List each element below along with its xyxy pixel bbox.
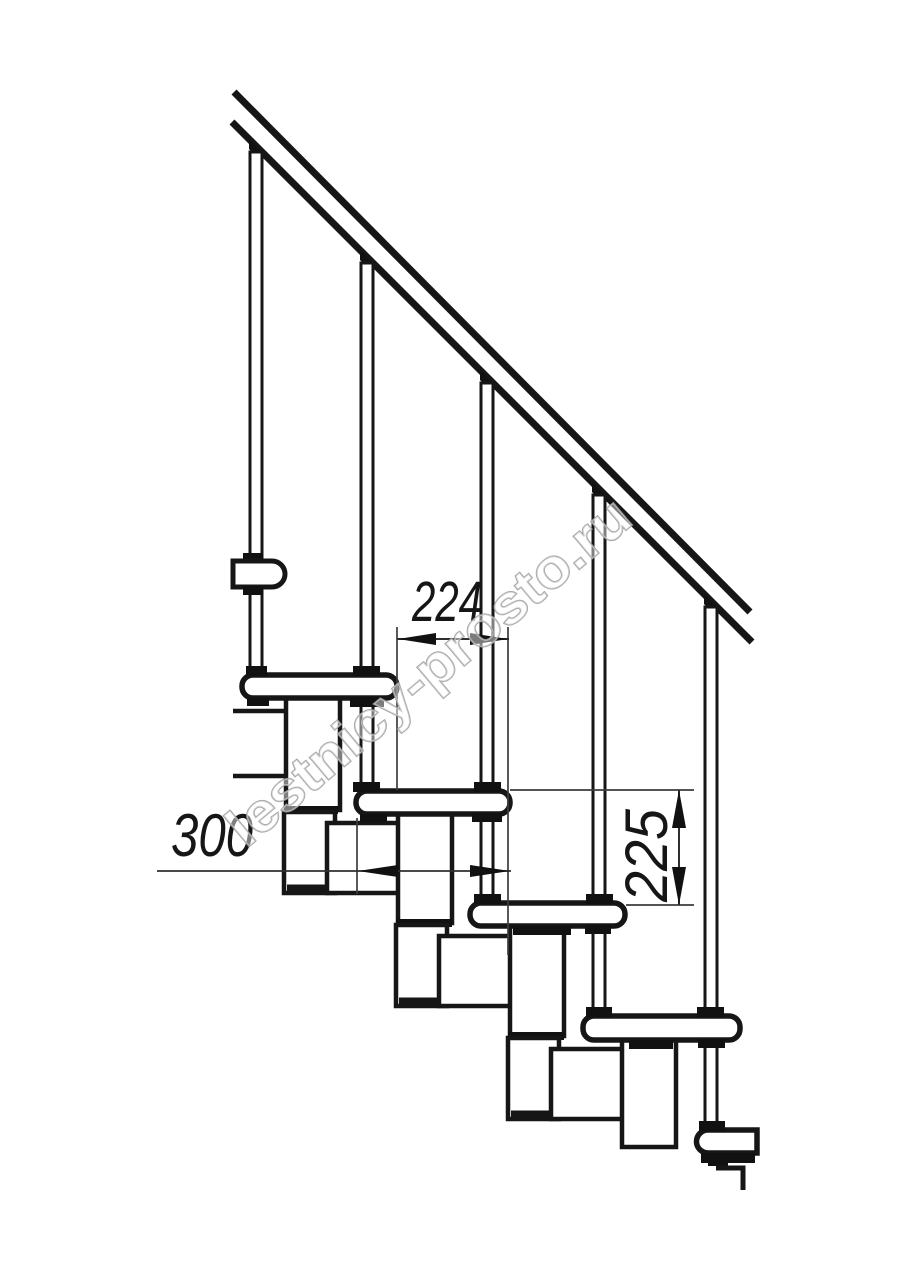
tread (356, 791, 510, 814)
tread (697, 1130, 758, 1153)
support-module (439, 936, 513, 1006)
stud (705, 1039, 717, 1130)
staircase-drawing: 224 300 225 lestnicy-prosto.ru (0, 0, 914, 1280)
mount-tab (697, 1007, 724, 1017)
support-module (551, 1049, 625, 1119)
baluster (250, 152, 262, 677)
bracket-body (233, 561, 285, 587)
baluster (705, 607, 717, 1016)
mount-tab (474, 894, 501, 904)
mount-tab (472, 813, 502, 822)
support-module (327, 823, 401, 893)
mount-tab (360, 814, 387, 822)
mount-tab (629, 1040, 673, 1049)
mount-tab (246, 666, 267, 676)
mount-tab (708, 1156, 728, 1166)
dimension-label-225: 225 (613, 808, 680, 903)
tread (470, 903, 625, 926)
lower-step-edge (716, 1168, 743, 1190)
mount-tab (513, 926, 571, 935)
support-module (398, 811, 452, 923)
mount-tab (585, 925, 611, 934)
wall-bracket (233, 553, 285, 595)
support-module (622, 1037, 676, 1147)
mount-tab (698, 1039, 725, 1048)
baluster (361, 263, 373, 677)
mount-tab (474, 782, 501, 792)
mount-tab (353, 782, 380, 792)
drawing-canvas: 224 300 225 lestnicy-prosto.ru (0, 0, 914, 1280)
mount-tab (699, 1121, 725, 1131)
mount-tab (247, 698, 269, 706)
stud (593, 926, 605, 1016)
stud (481, 814, 493, 903)
support-module (510, 924, 564, 1036)
tread (583, 1016, 740, 1040)
mount-tab (243, 586, 263, 595)
mount-tab (586, 894, 613, 904)
mount-tab (586, 1007, 612, 1017)
